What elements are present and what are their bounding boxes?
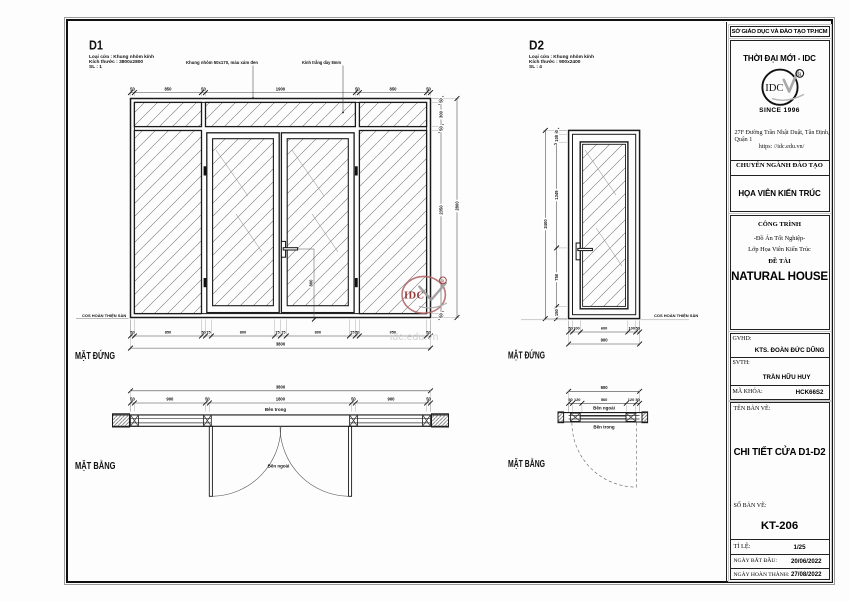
svg-text:50: 50 <box>568 397 572 402</box>
svg-text:800: 800 <box>240 330 247 335</box>
svg-text:idc.edu.vn: idc.edu.vn <box>390 332 439 343</box>
svg-text:MẶT BẰNG: MẶT BẰNG <box>508 457 545 470</box>
svg-text:50: 50 <box>635 397 639 402</box>
svg-text:50: 50 <box>426 86 431 91</box>
svg-text:50: 50 <box>568 326 572 331</box>
svg-text:IDC: IDC <box>404 291 424 302</box>
svg-text:900: 900 <box>388 397 396 402</box>
svg-text:2350: 2350 <box>439 205 444 215</box>
svg-text:100: 100 <box>629 326 636 331</box>
svg-text:SL : 4: SL : 4 <box>529 64 542 70</box>
svg-text:R: R <box>797 71 801 77</box>
svg-text:Kính trắng dày 8mm: Kính trắng dày 8mm <box>302 59 341 65</box>
svg-text:800: 800 <box>309 279 314 287</box>
svg-text:IDC: IDC <box>765 82 783 93</box>
svg-text:50: 50 <box>355 330 359 335</box>
svg-text:COS HOÀN THIỆN SÀN: COS HOÀN THIỆN SÀN <box>82 313 126 318</box>
svg-text:50: 50 <box>130 397 135 402</box>
svg-text:SL : 1: SL : 1 <box>89 64 102 70</box>
svg-text:1349: 1349 <box>554 190 559 200</box>
svg-text:2400: 2400 <box>543 219 548 229</box>
svg-text:120: 120 <box>574 397 581 402</box>
svg-text:COS HOÀN THIỆN SÀN: COS HOÀN THIỆN SÀN <box>654 313 698 318</box>
svg-text:850: 850 <box>165 330 172 335</box>
svg-text:75: 75 <box>281 330 286 335</box>
svg-text:150: 150 <box>554 308 559 316</box>
svg-text:Khung nhôm 50x170, màu xám đen: Khung nhôm 50x170, màu xám đen <box>186 60 258 65</box>
svg-text:MẶT ĐỨNG: MẶT ĐỨNG <box>75 349 115 362</box>
svg-text:50: 50 <box>201 86 206 91</box>
svg-text:50: 50 <box>439 126 444 131</box>
svg-text:50: 50 <box>635 326 639 331</box>
svg-text:600: 600 <box>601 326 608 331</box>
svg-text:MẶT BẰNG: MẶT BẰNG <box>75 459 116 472</box>
svg-text:Bên ngoài: Bên ngoài <box>268 463 290 468</box>
svg-text:900: 900 <box>601 385 609 390</box>
svg-text:850: 850 <box>164 86 172 91</box>
svg-text:75: 75 <box>206 330 211 335</box>
svg-text:D2: D2 <box>529 39 544 53</box>
svg-text:300: 300 <box>439 110 444 118</box>
svg-text:50: 50 <box>439 313 444 318</box>
svg-text:2800: 2800 <box>455 201 460 211</box>
svg-text:1900: 1900 <box>276 86 286 91</box>
svg-text:Bên ngoài: Bên ngoài <box>593 405 615 410</box>
svg-text:560: 560 <box>601 397 608 402</box>
svg-text:100: 100 <box>554 134 559 142</box>
svg-text:D1: D1 <box>89 39 103 53</box>
svg-text:50: 50 <box>351 397 356 402</box>
svg-text:120: 120 <box>628 397 635 402</box>
svg-text:75: 75 <box>275 330 280 335</box>
svg-text:800: 800 <box>315 330 322 335</box>
svg-text:900: 900 <box>601 338 609 343</box>
svg-text:50: 50 <box>130 86 135 91</box>
svg-text:750: 750 <box>554 273 559 281</box>
svg-text:MẶT ĐỨNG: MẶT ĐỨNG <box>508 349 545 362</box>
svg-text:Bên trong: Bên trong <box>265 407 286 412</box>
svg-text:900: 900 <box>166 397 174 402</box>
svg-text:3800: 3800 <box>276 384 286 389</box>
svg-text:50: 50 <box>130 330 134 335</box>
svg-text:50: 50 <box>355 86 360 91</box>
svg-text:50: 50 <box>426 397 431 402</box>
svg-text:850: 850 <box>390 86 398 91</box>
svg-text:50: 50 <box>201 330 205 335</box>
svg-text:50: 50 <box>205 397 210 402</box>
svg-text:1800: 1800 <box>276 397 286 402</box>
svg-text:3800: 3800 <box>276 342 286 347</box>
svg-text:Bên trong: Bên trong <box>593 424 614 429</box>
svg-text:100: 100 <box>573 326 580 331</box>
svg-text:50: 50 <box>439 97 444 102</box>
